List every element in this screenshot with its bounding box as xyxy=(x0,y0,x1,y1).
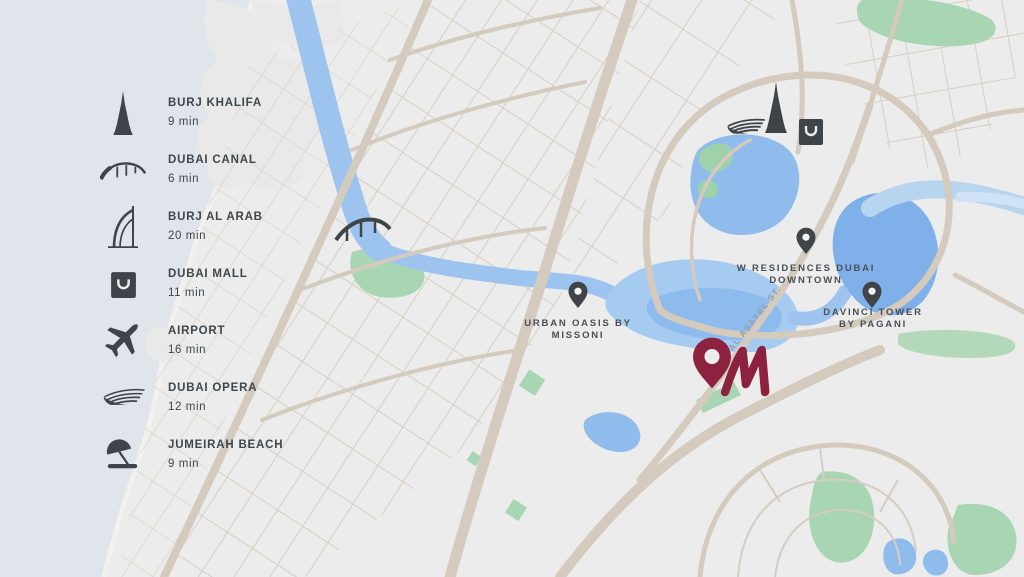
legend-item-jumeirah-beach: JUMEIRAH BEACH 9 min xyxy=(100,426,320,483)
legend-time: 6 min xyxy=(168,173,257,185)
legend-time: 20 min xyxy=(168,230,263,242)
legend-label: BURJ KHALIFA xyxy=(168,97,262,109)
marker-label-davinci-line2: BY PAGANI xyxy=(839,319,907,330)
marker-label-urban-oasis-line2: MISSONI xyxy=(552,330,605,341)
legend-time: 11 min xyxy=(168,287,248,299)
legend-item-dubai-canal: DUBAI CANAL 6 min xyxy=(100,141,320,198)
legend-label: DUBAI OPERA xyxy=(168,382,257,394)
location-map-page: URBAN OASIS BY MISSONI W RESIDENCES DUBA… xyxy=(0,0,1024,577)
marker-label-w-residences-line2: DOWNTOWN xyxy=(769,275,842,286)
legend-time: 12 min xyxy=(168,401,257,413)
marker-label-w-residences-line1: W RESIDENCES DUBAI xyxy=(737,263,876,274)
legend-time: 9 min xyxy=(168,116,262,128)
bridge-icon xyxy=(100,158,146,182)
legend-item-dubai-opera: DUBAI OPERA 12 min xyxy=(100,369,320,426)
opera-icon xyxy=(100,385,146,410)
legend-label: AIRPORT xyxy=(168,325,225,337)
shopping-bag-icon xyxy=(110,268,137,299)
burj-khalifa-icon xyxy=(112,91,134,135)
marker-label-davinci-line1: DAVINCI TOWER xyxy=(823,307,923,318)
legend-label: BURJ AL ARAB xyxy=(168,211,263,223)
legend-label: DUBAI CANAL xyxy=(168,154,257,166)
legend-label: DUBAI MALL xyxy=(168,268,248,280)
marker-label-urban-oasis-line1: URBAN OASIS BY xyxy=(524,318,632,329)
legend-item-burj-khalifa: BURJ KHALIFA 9 min xyxy=(100,84,320,141)
shopping-bag-map-icon xyxy=(799,119,823,145)
legend: BURJ KHALIFA 9 min DUBAI CANAL 6 min xyxy=(100,84,320,483)
sail-hotel-icon xyxy=(107,206,139,248)
legend-item-burj-al-arab: BURJ AL ARAB 20 min xyxy=(100,198,320,255)
legend-label: JUMEIRAH BEACH xyxy=(168,439,283,451)
legend-time: 16 min xyxy=(168,344,225,356)
airplane-icon xyxy=(104,322,142,360)
legend-item-dubai-mall: DUBAI MALL 11 min xyxy=(100,255,320,312)
legend-item-airport: AIRPORT 16 min xyxy=(100,312,320,369)
legend-time: 9 min xyxy=(168,458,283,470)
beach-umbrella-icon xyxy=(105,438,141,471)
